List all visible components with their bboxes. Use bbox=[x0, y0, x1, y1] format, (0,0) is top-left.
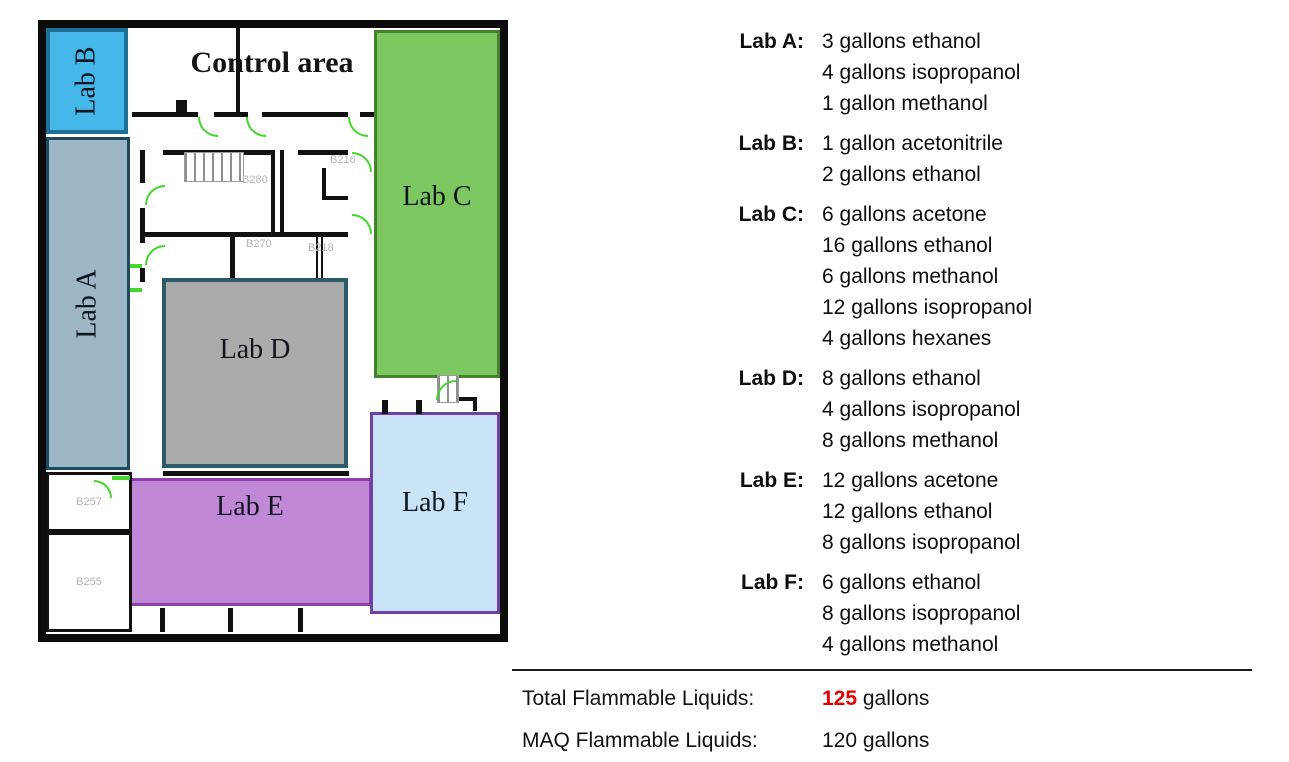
inventory-item: 4 gallons methanol bbox=[822, 629, 1256, 660]
inventory-section-lab-b: Lab B: 1 gallon acetonitrile 2 gallons e… bbox=[512, 128, 1256, 190]
lab-f-label: Lab F: bbox=[512, 567, 822, 660]
inventory-item: 12 gallons acetone bbox=[822, 465, 1256, 496]
room-number-b270: B270 bbox=[246, 238, 272, 250]
inventory-item: 1 gallon methanol bbox=[822, 88, 1256, 119]
inventory-item: 4 gallons isopropanol bbox=[822, 57, 1256, 88]
door-swing-icon bbox=[348, 117, 368, 137]
room-number-b216: B216 bbox=[330, 154, 356, 166]
lab-d-items: 8 gallons ethanol 4 gallons isopropanol … bbox=[822, 363, 1256, 456]
door-swing-icon bbox=[198, 117, 218, 137]
lab-b-label: Lab B: bbox=[512, 128, 822, 190]
room-b257: B257 bbox=[46, 472, 132, 532]
inventory-item: 8 gallons isopropanol bbox=[822, 527, 1256, 558]
wall-pillar bbox=[176, 100, 187, 113]
lab-b-items: 1 gallon acetonitrile 2 gallons ethanol bbox=[822, 128, 1256, 190]
room-number-b255: B255 bbox=[76, 576, 102, 588]
inventory-item: 6 gallons acetone bbox=[822, 199, 1256, 230]
inventory-section-lab-c: Lab C: 6 gallons acetone 16 gallons etha… bbox=[512, 199, 1256, 354]
room-lab-c: Lab C bbox=[374, 30, 500, 378]
inventory-item: 16 gallons ethanol bbox=[822, 230, 1256, 261]
room-number-b218: B218 bbox=[308, 242, 334, 254]
maq-flammable-number: 120 bbox=[822, 729, 857, 752]
room-lab-b: Lab B bbox=[46, 28, 128, 134]
door-marker-icon bbox=[130, 288, 142, 292]
inventory-item: 4 gallons hexanes bbox=[822, 323, 1256, 354]
room-lab-a: Lab A bbox=[46, 137, 130, 470]
lab-a-items: 3 gallons ethanol 4 gallons isopropanol … bbox=[822, 26, 1256, 119]
lab-d-label: Lab D: bbox=[512, 363, 822, 456]
wall bbox=[132, 112, 198, 117]
lab-e-label: Lab E: bbox=[512, 465, 822, 558]
inventory-item: 12 gallons ethanol bbox=[822, 496, 1256, 527]
inventory-section-lab-f: Lab F: 6 gallons ethanol 8 gallons isopr… bbox=[512, 567, 1256, 660]
room-number-b280: B280 bbox=[242, 174, 268, 186]
wall bbox=[140, 268, 145, 282]
room-lab-a-label: Lab A bbox=[72, 269, 104, 338]
room-lab-d: Lab D bbox=[162, 278, 348, 468]
inventory-section-lab-d: Lab D: 8 gallons ethanol 4 gallons isopr… bbox=[512, 363, 1256, 456]
inventory-item: 4 gallons isopropanol bbox=[822, 394, 1256, 425]
door-swing-icon bbox=[145, 245, 165, 265]
wall bbox=[271, 150, 275, 236]
room-lab-c-label: Lab C bbox=[402, 181, 471, 213]
total-flammable-number: 125 bbox=[822, 687, 857, 710]
wall bbox=[140, 150, 145, 183]
wall bbox=[228, 608, 233, 632]
room-lab-b-label: Lab B bbox=[71, 46, 103, 115]
total-flammable-value: 125 gallons bbox=[822, 683, 929, 714]
inventory-section-lab-a: Lab A: 3 gallons ethanol 4 gallons isopr… bbox=[512, 26, 1256, 119]
room-lab-e: Lab E bbox=[128, 478, 372, 606]
totals-divider bbox=[512, 669, 1252, 671]
wall bbox=[382, 400, 388, 414]
total-flammable-unit: gallons bbox=[857, 687, 929, 710]
wall bbox=[262, 112, 348, 117]
wall bbox=[214, 112, 248, 117]
inventory-item: 8 gallons isopropanol bbox=[822, 598, 1256, 629]
door-swing-icon bbox=[145, 185, 165, 205]
stairs-icon bbox=[184, 152, 244, 182]
door-marker-icon bbox=[112, 476, 130, 480]
inventory-item: 2 gallons ethanol bbox=[822, 159, 1256, 190]
inventory-item: 6 gallons ethanol bbox=[822, 567, 1256, 598]
inventory-section-lab-e: Lab E: 12 gallons acetone 12 gallons eth… bbox=[512, 465, 1256, 558]
lab-c-label: Lab C: bbox=[512, 199, 822, 354]
door-swing-icon bbox=[246, 117, 266, 137]
maq-flammable-value: 120 gallons bbox=[822, 725, 929, 756]
room-lab-d-label: Lab D bbox=[220, 334, 291, 366]
wall bbox=[163, 471, 349, 476]
lab-a-label: Lab A: bbox=[512, 26, 822, 119]
floorplan: Lab B Lab A Lab C Lab D Lab E Lab F B257 bbox=[38, 20, 508, 642]
room-lab-f: Lab F bbox=[370, 412, 500, 614]
wall bbox=[230, 237, 235, 278]
inventory-item: 3 gallons ethanol bbox=[822, 26, 1256, 57]
wall bbox=[160, 608, 165, 632]
door-marker-icon bbox=[130, 264, 142, 268]
inventory-item: 8 gallons methanol bbox=[822, 425, 1256, 456]
inventory-panel: Lab A: 3 gallons ethanol 4 gallons isopr… bbox=[512, 26, 1256, 756]
inventory-item: 6 gallons methanol bbox=[822, 261, 1256, 292]
lab-f-items: 6 gallons ethanol 8 gallons isopropanol … bbox=[822, 567, 1256, 660]
door-swing-icon bbox=[352, 214, 372, 234]
room-lab-f-label: Lab F bbox=[402, 487, 468, 519]
inventory-item: 12 gallons isopropanol bbox=[822, 292, 1256, 323]
room-b255: B255 bbox=[46, 532, 132, 632]
control-area-label: Control area bbox=[134, 46, 410, 80]
floorplan-inner: Lab B Lab A Lab C Lab D Lab E Lab F B257 bbox=[46, 28, 500, 634]
wall bbox=[280, 150, 284, 236]
room-lab-e-label: Lab E bbox=[216, 491, 284, 523]
wall bbox=[416, 400, 422, 414]
maq-flammable-label: MAQ Flammable Liquids: bbox=[512, 725, 822, 756]
wall bbox=[140, 208, 145, 243]
wall bbox=[322, 196, 348, 200]
total-flammable-row: Total Flammable Liquids: 125 gallons bbox=[512, 683, 1256, 714]
maq-flammable-row: MAQ Flammable Liquids: 120 gallons bbox=[512, 725, 1256, 756]
wall bbox=[473, 397, 477, 411]
wall bbox=[298, 608, 303, 632]
total-flammable-label: Total Flammable Liquids: bbox=[512, 683, 822, 714]
wall bbox=[236, 28, 240, 117]
inventory-item: 8 gallons ethanol bbox=[822, 363, 1256, 394]
lab-c-items: 6 gallons acetone 16 gallons ethanol 6 g… bbox=[822, 199, 1256, 354]
maq-flammable-unit: gallons bbox=[857, 729, 929, 752]
slide: Lab B Lab A Lab C Lab D Lab E Lab F B257 bbox=[0, 0, 1289, 762]
lab-e-items: 12 gallons acetone 12 gallons ethanol 8 … bbox=[822, 465, 1256, 558]
inventory-item: 1 gallon acetonitrile bbox=[822, 128, 1256, 159]
